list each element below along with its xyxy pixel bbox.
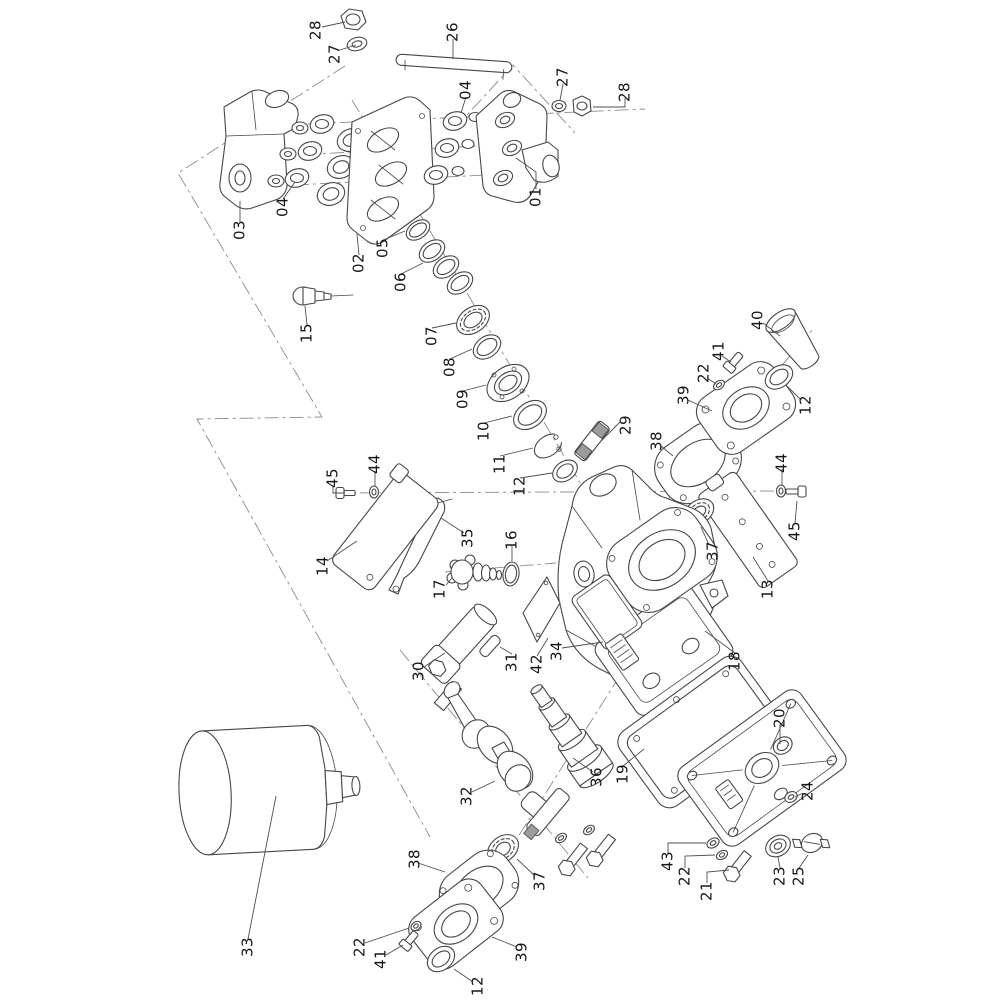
part-number-label: 13 — [759, 579, 777, 599]
callout-39: 39 — [492, 937, 531, 962]
part-25-wing-plug — [791, 824, 832, 863]
exploded-parts-diagram-page: 2827260427280104030205061507080910111229… — [0, 0, 1000, 1000]
part-number-label: 32 — [458, 786, 476, 806]
part-number-label: 04 — [274, 197, 292, 217]
part-17-valve-knob — [447, 555, 502, 590]
part-44-washer-left — [370, 486, 379, 498]
callout-25: 25 — [790, 855, 809, 886]
part-number-label: 28 — [307, 20, 325, 40]
callout-24: 24 — [795, 781, 817, 801]
part-11-snap-ring — [530, 430, 564, 462]
callout-23: 23 — [771, 857, 789, 886]
part-number-label: 03 — [231, 220, 249, 240]
callout-45: 45 — [786, 501, 804, 541]
part-28-nut-top — [341, 9, 366, 30]
callout-22: 22 — [695, 363, 717, 384]
callout-12: 12 — [454, 969, 487, 996]
part-number-label: 18 — [726, 651, 744, 671]
part-29-stud — [574, 420, 611, 462]
part-number-label: 10 — [475, 421, 493, 441]
part-number-label: 33 — [239, 937, 257, 957]
part-number-label: 29 — [617, 415, 635, 435]
part-number-label: 39 — [513, 942, 531, 962]
part-01-inlet-manifold — [476, 90, 562, 203]
part-number-label: 41 — [372, 949, 390, 969]
callout-27: 27 — [554, 67, 572, 100]
part-number-label: 19 — [614, 764, 632, 784]
callout-07: 07 — [423, 323, 457, 346]
callout-41: 41 — [372, 945, 404, 969]
callout-04: 04 — [457, 80, 475, 113]
part-40-cone-cap — [762, 304, 826, 375]
callout-31: 31 — [500, 647, 521, 672]
part-22-washer-bottom-right — [715, 849, 729, 862]
part-number-label: 17 — [431, 579, 449, 599]
part-23-plug — [762, 831, 795, 861]
part-26-tie-rod — [396, 54, 512, 79]
callout-16: 16 — [503, 530, 521, 561]
part-16-o-ring — [501, 561, 520, 587]
callout-17: 17 — [431, 578, 453, 599]
leader-line — [537, 638, 548, 656]
part-10-ring — [508, 394, 552, 435]
callout-06: 06 — [392, 263, 424, 292]
part-number-label: 37 — [531, 871, 549, 891]
callout-12: 12 — [511, 473, 553, 496]
callout-44: 44 — [773, 453, 791, 486]
part-number-label: 05 — [374, 238, 392, 258]
part-number-label: 31 — [503, 652, 521, 672]
part-44-washer-right — [777, 485, 786, 497]
part-number-label: 25 — [790, 866, 808, 886]
part-number-label: 12 — [797, 395, 815, 415]
part-number-label: 14 — [314, 556, 332, 576]
callout-42: 42 — [528, 638, 549, 674]
exploded-parts-diagram: 2827260427280104030205061507080910111229… — [0, 0, 1000, 1000]
part-06-seal-rings — [415, 235, 477, 299]
part-number-label: 21 — [698, 881, 716, 901]
part-number-label: 12 — [511, 476, 529, 496]
callout-09: 09 — [454, 385, 487, 409]
part-08-ring — [469, 330, 506, 364]
part-number-label: 40 — [749, 310, 767, 330]
part-number-label: 45 — [324, 468, 342, 488]
leader-line — [322, 22, 345, 27]
part-number-label: 22 — [351, 937, 369, 957]
callout-08: 08 — [441, 349, 473, 377]
leader-line — [795, 501, 797, 523]
callout-26: 26 — [444, 22, 462, 59]
part-number-label: 08 — [441, 357, 459, 377]
part-number-label: 07 — [423, 326, 441, 346]
part-number-label: 02 — [350, 253, 368, 273]
part-number-label: 04 — [457, 80, 475, 100]
part-43-washer — [705, 836, 721, 850]
callout-15: 15 — [298, 306, 316, 343]
part-number-label: 45 — [786, 521, 804, 541]
part-number-label: 44 — [366, 454, 384, 474]
part-number-label: 15 — [298, 323, 316, 343]
part-number-label: 12 — [469, 976, 487, 996]
part-number-label: 35 — [459, 528, 477, 548]
part-number-label: 38 — [406, 849, 424, 869]
part-number-label: 20 — [771, 708, 789, 728]
part-number-label: 41 — [710, 341, 728, 361]
part-45-screw-right — [786, 486, 806, 497]
part-12-seal-top — [548, 455, 581, 486]
part-number-label: 01 — [527, 187, 545, 207]
part-15-plug — [293, 287, 353, 305]
part-number-label: 22 — [676, 866, 694, 886]
part-number-label: 22 — [695, 363, 713, 383]
part-number-label: 28 — [616, 82, 634, 102]
leader-line — [357, 234, 359, 255]
part-number-label: 24 — [799, 781, 817, 801]
callout-28: 28 — [593, 82, 634, 107]
part-number-label: 42 — [528, 654, 546, 674]
part-number-label: 37 — [704, 541, 722, 561]
callout-35: 35 — [441, 518, 477, 548]
part-number-label: 36 — [588, 767, 606, 787]
callout-32: 32 — [458, 781, 496, 806]
part-09-bearing-housing — [480, 357, 536, 410]
part-27-washer-right — [552, 101, 566, 112]
callout-38: 38 — [406, 849, 446, 872]
callout-41: 41 — [710, 341, 732, 362]
part-number-label: 26 — [444, 22, 462, 42]
part-number-label: 34 — [548, 641, 566, 661]
part-33-accumulator — [176, 723, 363, 856]
part-number-label: 44 — [773, 453, 791, 473]
part-number-label: 30 — [410, 661, 428, 681]
part-number-label: 39 — [675, 385, 693, 405]
part-number-label: 09 — [454, 389, 472, 409]
part-27-washer-top — [346, 35, 369, 53]
part-number-label: 11 — [491, 454, 509, 474]
part-number-label: 23 — [771, 866, 789, 886]
part-number-label: 38 — [648, 431, 666, 451]
part-28-nut-right — [573, 96, 591, 116]
part-number-label: 06 — [392, 272, 410, 292]
part-42-data-plate — [523, 577, 560, 642]
part-number-label: 43 — [659, 851, 677, 871]
part-number-label: 27 — [326, 44, 344, 64]
part-number-label: 16 — [503, 530, 521, 550]
callout-28: 28 — [307, 20, 346, 40]
callout-44: 44 — [366, 454, 384, 486]
callout-37: 37 — [517, 859, 549, 891]
callout-11: 11 — [491, 448, 534, 474]
leader-line — [305, 306, 307, 325]
part-number-label: 27 — [554, 67, 572, 87]
part-07-bearing — [451, 299, 495, 340]
callout-10: 10 — [475, 416, 513, 441]
